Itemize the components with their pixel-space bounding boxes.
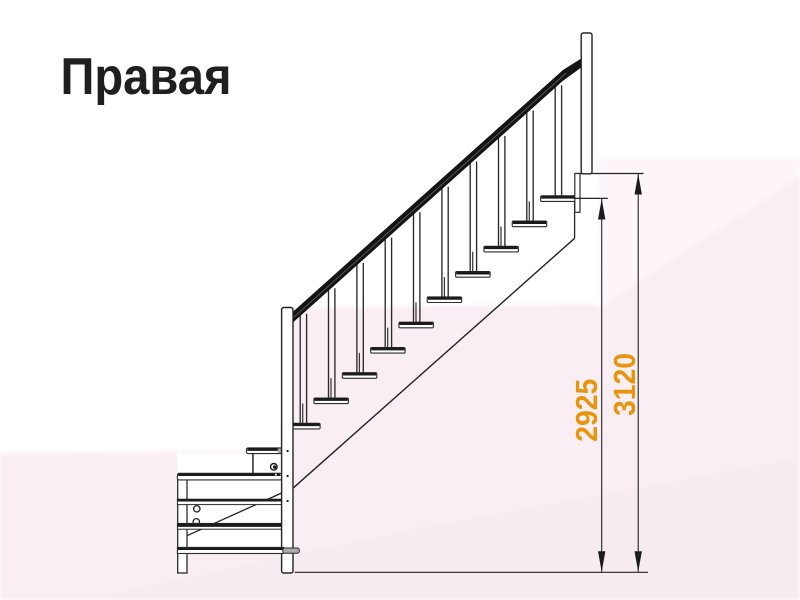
svg-text:Правая: Правая: [61, 47, 232, 105]
svg-text:3120: 3120: [607, 353, 642, 416]
svg-text:2925: 2925: [569, 379, 604, 442]
